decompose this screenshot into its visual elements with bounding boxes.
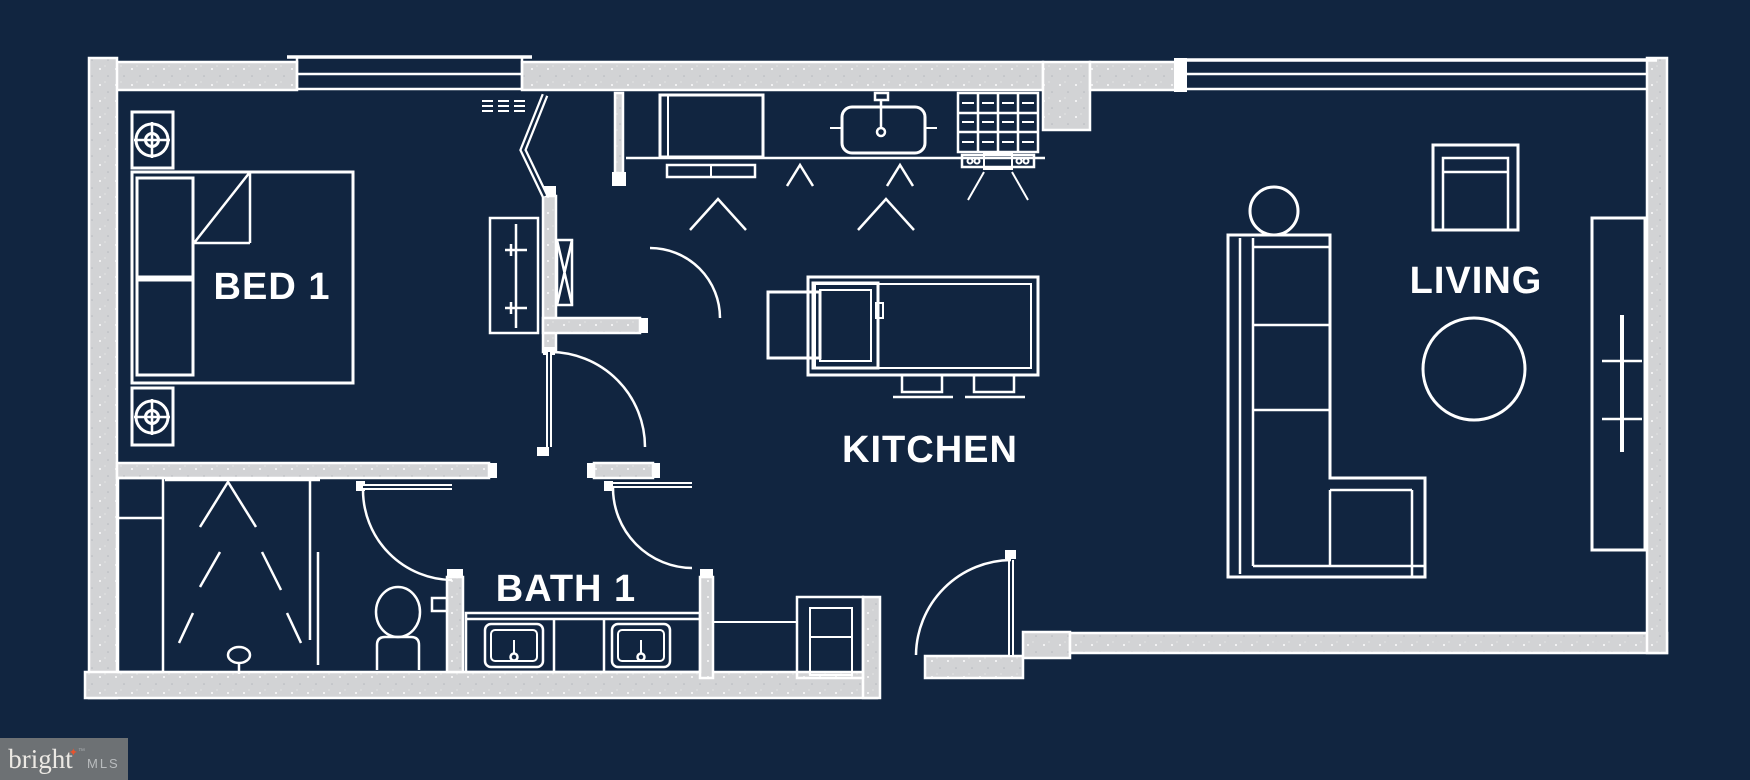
watermark-trademark: ™ (78, 748, 85, 755)
living-furniture (1228, 145, 1645, 577)
wall-bottom-left (85, 672, 877, 698)
duct-chase (557, 240, 572, 305)
vanity-sink-left (485, 624, 543, 667)
wall-top-b (522, 62, 1043, 90)
wall-column-top (1043, 62, 1090, 130)
cabinet-marks (690, 165, 914, 230)
sectional-sofa (1228, 235, 1425, 577)
wall-step (863, 597, 880, 698)
room-label-bed-1: BED 1 (214, 266, 331, 308)
room-label-living: LIVING (1410, 260, 1543, 302)
wall-top-c (1090, 62, 1177, 90)
kitchen-fixtures (626, 93, 1045, 397)
double-vanity (466, 613, 700, 672)
watermark-brand-text: bright (8, 746, 73, 773)
tv-console (1592, 218, 1645, 550)
room-label-kitchen: KITCHEN (842, 429, 1018, 471)
wall-right (1647, 58, 1667, 653)
wall-caps (356, 58, 1187, 577)
floor-plan-image: BED 1 BATH 1 KITCHEN LIVING bright ✦ ™ M… (0, 0, 1750, 780)
walk-in-shower (179, 480, 318, 674)
brightmls-watermark: bright ✦ ™ MLS (0, 738, 128, 780)
wall-bottom-right (1070, 633, 1667, 653)
round-side-table (1250, 187, 1298, 235)
vanity-sink-right (612, 624, 670, 667)
flush-plate (432, 598, 447, 611)
living-room-window (1180, 60, 1657, 89)
bifold-door (523, 95, 545, 196)
hall-door (650, 248, 720, 318)
wall-hall-bath (543, 318, 640, 333)
island-sink (813, 283, 878, 368)
bedroom-furniture (132, 95, 572, 445)
bar-stool-2 (974, 375, 1014, 392)
nightstand-top (132, 112, 173, 168)
toilet (376, 587, 447, 670)
bath-door-left (363, 487, 452, 580)
kitchen-sink (830, 93, 937, 153)
nightstand-bottom (132, 388, 173, 445)
room-label-bath-1: BATH 1 (496, 568, 636, 610)
wall-left (89, 58, 117, 698)
wall-hall-vertical (615, 93, 623, 173)
refrigerator (660, 95, 763, 177)
faucet-base (875, 93, 888, 100)
entry-threshold (925, 656, 1023, 678)
gas-range (958, 93, 1038, 200)
pillow-1 (137, 178, 193, 277)
wall-top-a (92, 62, 297, 90)
wall-bath-stub (594, 463, 653, 478)
watermark-org-text: MLS (87, 756, 120, 771)
linen-cabinet (118, 478, 163, 672)
wall-toilet (447, 577, 463, 672)
entry-door (916, 560, 1011, 655)
utility-closet (713, 597, 863, 678)
watermark-star-icon: ✦ (69, 746, 78, 759)
floor-plan-drawing: BED 1 BATH 1 KITCHEN LIVING (0, 0, 1750, 780)
bedroom-door (549, 352, 645, 447)
round-coffee-table (1423, 318, 1525, 420)
wardrobe-closet (490, 218, 538, 333)
wall-entry-vertical (700, 577, 713, 678)
wall-column-entry (1023, 632, 1070, 658)
shower-drain (228, 647, 250, 663)
hvac-vent-icon (482, 101, 525, 111)
bar-stools (893, 375, 1025, 397)
kitchen-island (768, 277, 1038, 375)
bar-stool-1 (902, 375, 942, 392)
pillow-2 (137, 280, 193, 375)
wall-bedroom-bottom (117, 463, 489, 478)
bathroom-fixtures (118, 478, 863, 678)
bath-door-right (613, 485, 692, 568)
sheet-fold (194, 172, 250, 243)
bedroom-window (287, 57, 532, 90)
armchair (1433, 145, 1518, 230)
